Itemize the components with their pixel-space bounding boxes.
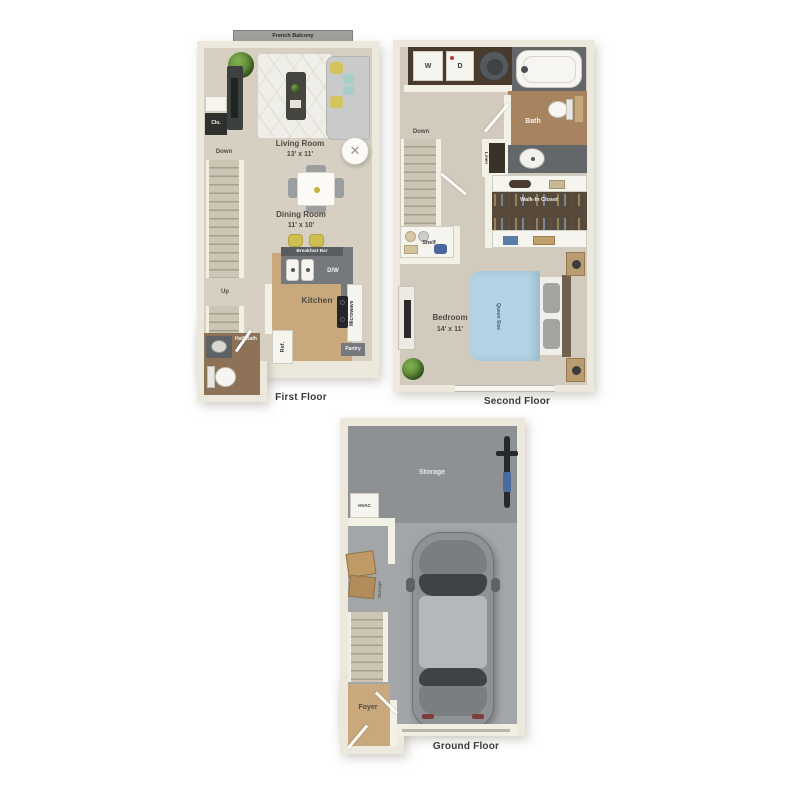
garage-door-line xyxy=(402,729,510,732)
staircase-upper xyxy=(206,160,244,278)
sofa-pillow-yellow xyxy=(330,62,343,74)
sofa-pillow-yellow-2 xyxy=(330,96,343,108)
dresser xyxy=(398,286,415,350)
kitchen-sink-2 xyxy=(301,259,314,281)
table-tray xyxy=(290,100,301,108)
garage-door xyxy=(396,724,517,736)
shelf-nook-wall xyxy=(454,226,460,258)
shelf-item xyxy=(509,180,531,188)
nightstand-2 xyxy=(566,358,585,382)
hanging-clothes-2 xyxy=(494,218,585,230)
linen-label: Linen xyxy=(481,143,489,173)
bath-toilet-tank xyxy=(566,99,573,120)
walk-in-closet-label: Walk-In Closet xyxy=(514,197,564,203)
bathtub xyxy=(516,50,582,88)
shelf-label: Shelf xyxy=(412,240,446,246)
water-heater xyxy=(479,51,509,81)
stairs-down-label: Down xyxy=(202,149,246,156)
lamp-icon xyxy=(572,366,581,375)
bath-sink-drain xyxy=(531,157,535,161)
entry-closet-label: Clo. xyxy=(211,121,220,127)
tv-console xyxy=(227,66,243,130)
breakfast-bar: Breakfast Bar xyxy=(281,247,343,256)
bath-label: Bath xyxy=(515,118,551,126)
car-mirror-2 xyxy=(491,578,500,592)
closet-top-shelf xyxy=(492,175,587,192)
half-bath-vanity xyxy=(206,336,232,358)
shelf-basket xyxy=(533,236,555,245)
headboard xyxy=(562,275,571,357)
car-rear-window xyxy=(419,668,487,686)
range xyxy=(337,296,348,328)
storage-divider-wall-v xyxy=(388,518,395,564)
burner xyxy=(340,300,345,305)
closet-wall xyxy=(485,175,492,248)
coffee-table xyxy=(286,72,306,120)
ceiling-fan-icon: ✕ xyxy=(341,137,369,165)
living-room-dims: 13' x 11' xyxy=(258,151,342,159)
tub-inner xyxy=(523,56,576,83)
sofa-pillow-teal xyxy=(343,74,354,84)
kitchen-counter-corner xyxy=(343,247,353,256)
french-balcony-label: French Balcony xyxy=(272,33,313,39)
sink-drain xyxy=(291,268,295,272)
dryer-label: D xyxy=(457,63,462,70)
stairs-up-label: Up xyxy=(221,289,229,296)
shelf-nook-wall-bottom xyxy=(400,258,460,264)
bedroom-dims: 14' x 11' xyxy=(418,326,482,334)
dresser-tv-icon xyxy=(404,300,411,338)
breakfast-bar-label: Breakfast Bar xyxy=(296,249,327,254)
table-plant-icon xyxy=(291,84,300,93)
sink-drain xyxy=(306,268,310,272)
storage-area-label: Storage xyxy=(402,469,462,477)
car-roof xyxy=(419,596,487,668)
storage-box-2 xyxy=(348,575,376,600)
car-mirror xyxy=(406,578,415,592)
kitchen-sink xyxy=(286,259,299,281)
refrigerator: Ref. xyxy=(272,330,293,364)
laundry-wall xyxy=(404,85,516,92)
bed-pillow-2 xyxy=(543,319,560,349)
ground-floor-caption: Ground Floor xyxy=(406,741,526,752)
toilet-tank xyxy=(207,366,215,388)
hvac-unit: HVAC xyxy=(350,493,379,518)
first-floor-caption: First Floor xyxy=(241,392,361,403)
staircase-second xyxy=(401,139,441,229)
shelf-basket xyxy=(549,180,565,189)
storage-box xyxy=(345,550,376,578)
car-taillight xyxy=(422,714,434,719)
hvac-label: HVAC xyxy=(358,503,370,508)
bar-stool xyxy=(309,234,324,247)
staircase-ground xyxy=(348,612,388,682)
car-taillight-2 xyxy=(472,714,484,719)
bath-sink xyxy=(519,148,545,169)
half-bath-sink xyxy=(211,340,227,353)
water-heater-top xyxy=(487,59,503,75)
tub-faucet xyxy=(521,66,528,73)
bar-stool xyxy=(288,234,303,247)
car-hood xyxy=(419,540,487,574)
linen-closet xyxy=(489,143,505,173)
dining-room-label: Dining Room xyxy=(261,211,341,220)
bath-wall xyxy=(504,95,511,145)
dishwasher-label: D/W xyxy=(320,268,346,275)
refrigerator-label: Ref. xyxy=(280,342,286,352)
bike-handlebar xyxy=(496,451,518,456)
bedroom-label: Bedroom xyxy=(418,314,482,323)
plant-icon-bedroom xyxy=(402,358,424,380)
foyer-label: Foyer xyxy=(346,704,390,712)
tv-icon xyxy=(231,78,238,118)
washer: W xyxy=(413,51,443,81)
queen-size-label: Queen Size xyxy=(490,293,501,339)
bath-toilet xyxy=(548,101,568,118)
entry-closet-shelf xyxy=(205,96,227,112)
washer-label: W xyxy=(425,63,432,70)
kitchen-wall xyxy=(265,284,272,334)
table-centerpiece xyxy=(314,187,320,193)
storage-boxes-label: Storage xyxy=(377,570,386,610)
dining-room-dims: 11' x 10' xyxy=(261,222,341,230)
sofa-pillow-teal-2 xyxy=(343,86,354,95)
car-windshield xyxy=(419,574,487,596)
burner xyxy=(340,317,345,322)
bike-frame-blue xyxy=(503,472,511,492)
bed-pillow xyxy=(543,283,560,313)
dryer-knob xyxy=(450,56,454,60)
floor-plan-canvas: French Balcony Clo. Down Up ✕ Living Roo xyxy=(0,0,800,800)
entry-closet: Clo. xyxy=(205,113,227,135)
dining-chair xyxy=(334,178,344,198)
dryer: D xyxy=(446,51,474,81)
car-trunk xyxy=(419,686,487,716)
stair-landing: Up xyxy=(206,278,244,306)
pantry-label: Pantry xyxy=(345,347,361,353)
lamp-icon xyxy=(572,260,581,269)
bedroom-window xyxy=(455,385,555,392)
closet-bottom-shelf xyxy=(492,230,587,248)
nightstand xyxy=(566,252,585,276)
microwave-label: Microwave xyxy=(349,294,362,332)
dining-table xyxy=(297,172,335,206)
second-floor-caption: Second Floor xyxy=(457,396,577,407)
shelf-box-blue xyxy=(503,236,518,245)
bath-bench xyxy=(574,95,584,123)
toilet xyxy=(215,367,236,387)
shelf-stack xyxy=(404,245,418,254)
stairs2-down-label: Down xyxy=(400,129,442,136)
living-room-label: Living Room xyxy=(258,140,342,149)
pantry: Pantry xyxy=(341,343,365,356)
